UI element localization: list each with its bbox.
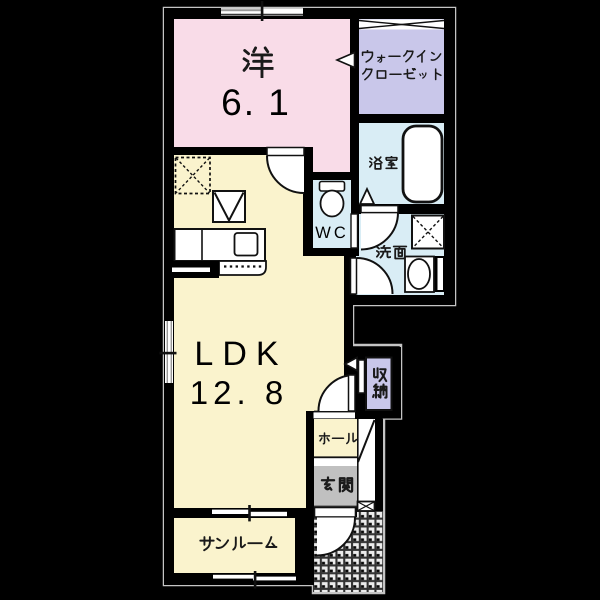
svg-text:WC: WC <box>315 224 349 242</box>
svg-text:6. 1: 6. 1 <box>221 82 291 123</box>
svg-text:12. 8: 12. 8 <box>190 374 288 411</box>
svg-text:LDK: LDK <box>194 335 287 373</box>
